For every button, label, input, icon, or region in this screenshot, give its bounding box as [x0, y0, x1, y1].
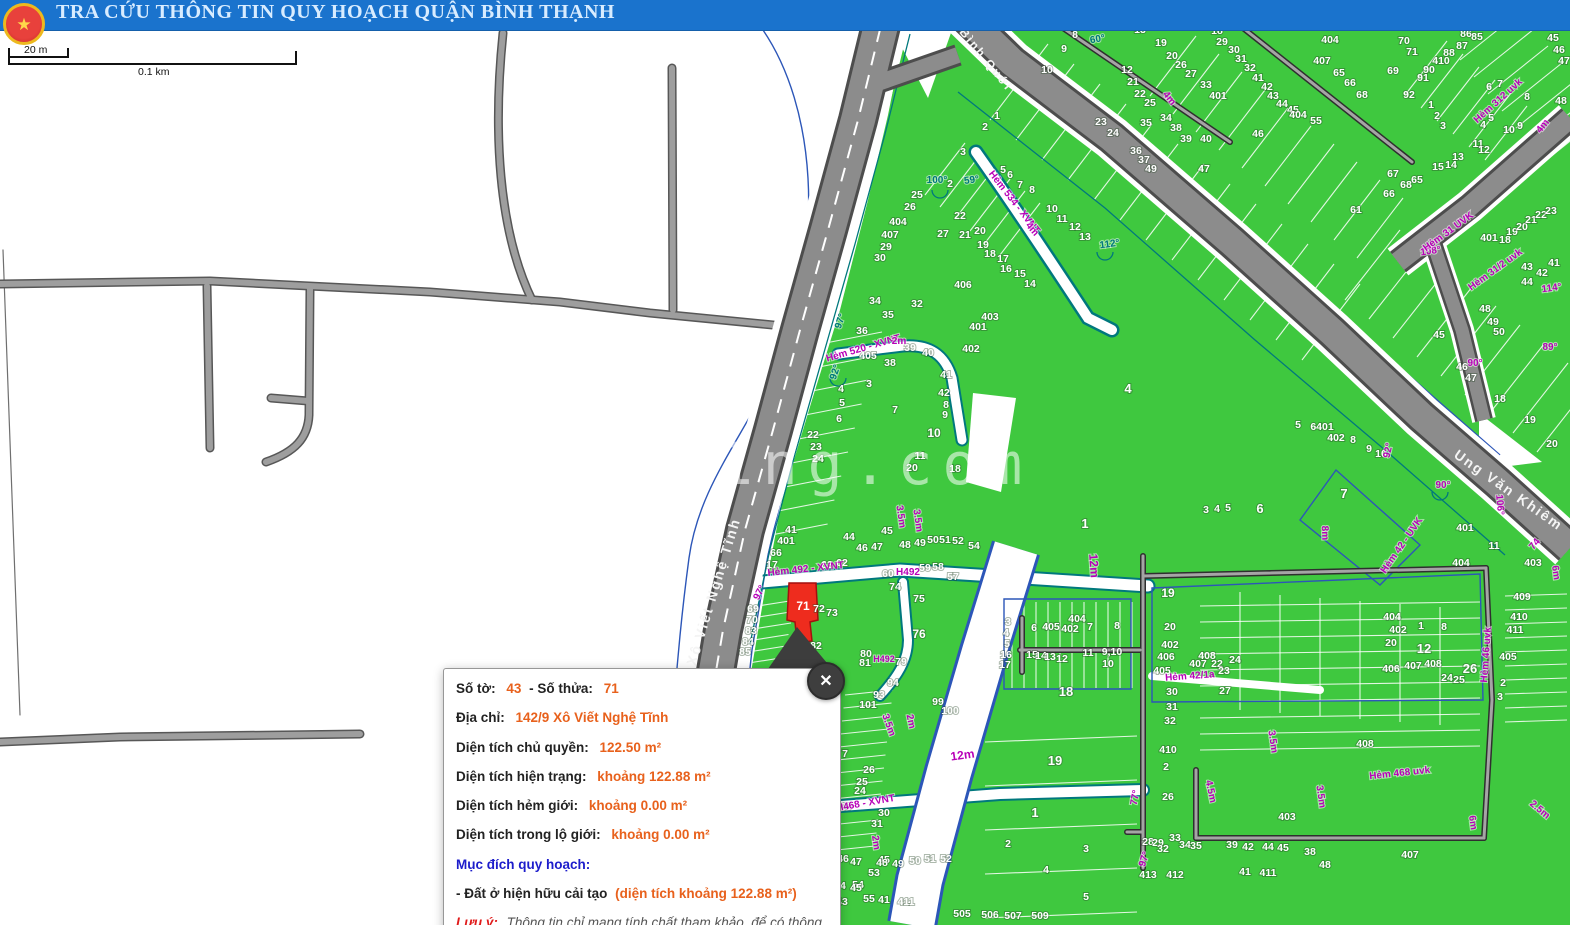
parcel-number-label: 10 [1503, 124, 1515, 136]
parcel-number-label: 407 [881, 229, 899, 241]
close-icon: ✕ [819, 671, 832, 691]
parcel-number-label: 32 [1157, 843, 1169, 855]
parcel-number-label: 3 [1083, 843, 1089, 855]
parcel-number-label: 47 [1198, 163, 1210, 175]
parcel-number-label: 20 [1164, 621, 1176, 633]
parcel-number-label: 36 [856, 325, 868, 337]
parcel-number-label: 71 [796, 599, 810, 613]
popup-label-blue: Mục đích quy hoạch: [456, 857, 590, 872]
parcel-number-label: 404 [1383, 611, 1401, 623]
parcel-number-label: 12 [1417, 641, 1431, 656]
parcel-number-label: 59 [919, 562, 931, 574]
parcel-number-label: 25 [1453, 674, 1465, 686]
parcel-number-label: 410 [1432, 55, 1450, 67]
popup-row: Diện tích hiện trạng: khoảng 122.88 m² [456, 767, 828, 787]
parcel-number-label: 48 [1555, 95, 1567, 107]
parcel-number-label: 412 [1166, 869, 1184, 881]
parcel-number-label: 14 [1024, 278, 1036, 290]
parcel-number-label: 49 [1145, 163, 1157, 175]
popup-row: Số tờ: 43 - Số thửa: 71 [456, 679, 828, 699]
parcel-number-label: 9 [1517, 120, 1523, 132]
parcel-number-label: 32 [911, 298, 923, 310]
parcel-number-label: 54 [968, 540, 980, 552]
popup-row: Diện tích hẻm giới: khoảng 0.00 m² [456, 796, 828, 816]
map-annotation-label: 6m [1549, 565, 1562, 581]
vietnam-emblem-logo: ★ [3, 3, 45, 45]
parcel-number-label: 81 [859, 657, 871, 669]
map-annotation-label: 106° [1493, 494, 1506, 516]
parcel-number-label: 100 [941, 705, 959, 717]
parcel-number-label: 44 [1521, 276, 1533, 288]
parcel-number-label: 44 [843, 531, 855, 543]
map-annotation-label: 2m [892, 336, 907, 347]
parcel-number-label: 42 [938, 387, 950, 399]
parcel-number-label: 17 [999, 659, 1011, 671]
parcel-number-label: 55 [1310, 115, 1322, 127]
parcel-number-label: 2 [982, 121, 988, 133]
parcel-number-label: 403 [1278, 811, 1296, 823]
popup-row: Diện tích chủ quyền: 122.50 m² [456, 738, 828, 758]
parcel-number-label: 49 [914, 537, 926, 549]
parcel-number-label: 40 [922, 347, 934, 359]
parcel-number-label: 39 [1180, 133, 1192, 145]
parcel-number-label: 408 [1424, 658, 1442, 670]
parcel-number-label: 23 [810, 441, 822, 453]
parcel-number-label: 10 [1041, 64, 1053, 76]
popup-value: 43 [506, 681, 521, 696]
parcel-number-label: 21 [1127, 76, 1139, 88]
parcel-number-label: 413 [1139, 869, 1157, 881]
parcel-number-label: 51 [939, 534, 951, 546]
parcel-number-label: 406 [1157, 651, 1175, 663]
parcel-number-label: 406 [1382, 663, 1400, 675]
parcel-number-label: 3 [866, 378, 872, 390]
parcel-number-label: 2 [1500, 677, 1506, 689]
popup-label: Diện tích trong lộ giới: [456, 827, 601, 842]
parcel-number-label: 60 [882, 568, 894, 580]
parcel-number-label: 42 [1536, 267, 1548, 279]
scale-km-label: 0.1 km [138, 66, 170, 78]
popup-value: khoảng 0.00 m² [589, 798, 687, 813]
page-title: TRA CỨU THÔNG TIN QUY HOẠCH QUẬN BÌNH TH… [56, 1, 615, 24]
parcel-number-label: 49 [892, 858, 904, 870]
parcel-number-label: 402 [1161, 639, 1179, 651]
parcel-number-label: 24 [1229, 654, 1241, 666]
parcel-number-label: 25 [911, 189, 923, 201]
parcel-number-label: 66 [1344, 77, 1356, 89]
parcel-number-label: 11 [1488, 540, 1499, 552]
parcel-number-label: 18 [949, 463, 961, 475]
parcel-number-label: 409 [1513, 591, 1531, 603]
parcel-number-label: 24 [1107, 127, 1119, 139]
map-annotation-label: 90° [1435, 480, 1450, 491]
parcel-number-label: 21 [959, 229, 971, 241]
parcel-number-label: 4 [1043, 864, 1049, 876]
parcel-number-label: 20 [906, 462, 918, 474]
parcel-number-label: 404 [1289, 109, 1307, 121]
parcel-number-label: 45 [850, 882, 862, 894]
parcel-number-label: 25 [1144, 97, 1156, 109]
popup-note: Thông tin chỉ mang tính chất tham khảo, … [456, 915, 822, 925]
parcel-number-label: 43 [1521, 261, 1533, 273]
map-annotation-label: 90° [1467, 358, 1482, 369]
parcel-number-label: 22 [954, 210, 966, 222]
parcel-number-label: 7 [842, 748, 848, 760]
parcel-number-label: 506 [981, 909, 999, 921]
parcel-number-label: 47 [871, 541, 883, 553]
parcel-number-label: 8 [1350, 434, 1356, 446]
parcel-number-label: 34 [869, 295, 881, 307]
parcel-number-label: 41 [1239, 866, 1251, 878]
parcel-number-label: 14 [1445, 159, 1457, 171]
parcel-number-label: 10 [1102, 658, 1114, 670]
parcel-number-label: 4 [1124, 381, 1132, 396]
parcel-number-label: 68 [1356, 89, 1368, 101]
popup-label: - Số thửa: [529, 681, 593, 696]
parcel-number-label: 407 [1401, 849, 1419, 861]
parcel-number-label: 32 [1164, 715, 1176, 727]
parcel-number-label: 38 [884, 357, 896, 369]
parcel-number-label: 50 [909, 855, 921, 867]
parcel-number-label: 20 [1385, 637, 1397, 649]
map-annotation-label: H492 [896, 567, 920, 578]
parcel-number-label: 407 [1404, 660, 1422, 672]
parcel-number-label: 72 [813, 603, 825, 615]
parcel-number-label: 31 [871, 818, 883, 830]
parcel-number-label: 44 [1262, 841, 1274, 853]
parcel-number-label: 401 [777, 535, 795, 547]
parcel-number-label: 92 [1403, 89, 1415, 101]
popup-value: (diện tích khoảng 122.88 m²) [615, 886, 797, 901]
map-annotation-label: 12m [1086, 553, 1102, 578]
popup-close-button[interactable]: ✕ [807, 662, 845, 700]
popup-note-label: Lưu ý: [456, 915, 498, 925]
parcel-number-label: 9 [942, 409, 948, 421]
map-annotation-label: 8m [1319, 525, 1331, 540]
planning-map-app: Bình QuớiXô Viết Nghệ TĩnhUng Văn Khiêm7… [0, 0, 1570, 925]
parcel-number-label: 46 [1252, 128, 1264, 140]
parcel-number-label: 12 [1121, 64, 1133, 76]
parcel-number-label: 12 [1478, 144, 1490, 156]
parcel-number-label: 9 [1061, 43, 1067, 55]
popup-row: - Đất ở hiện hữu cải tạo (diện tích khoả… [456, 884, 828, 904]
parcel-number-label: 23 [1545, 205, 1557, 217]
parcel-number-label: 3 [1497, 691, 1503, 703]
parcel-number-label: 45 [1433, 329, 1445, 341]
parcel-number-label: 26 [863, 764, 875, 776]
parcel-number-label: 45 [881, 525, 893, 537]
parcel-number-label: 5 [1295, 419, 1301, 431]
parcel-number-label: 19 [1155, 37, 1167, 49]
popup-label: Diện tích hiện trạng: [456, 769, 587, 784]
parcel-number-label: 1 [1418, 620, 1424, 632]
parcel-number-label: 1 [1031, 805, 1038, 820]
parcel-number-label: 12 [1056, 653, 1068, 665]
parcel-number-label: 45 [1547, 32, 1559, 44]
parcel-number-label: 507 [1004, 910, 1022, 922]
popup-label: Địa chỉ: [456, 710, 505, 725]
parcel-number-label: 13 [1044, 651, 1056, 663]
parcel-number-label: 4 [838, 383, 844, 395]
parcel-number-label: 22 [807, 429, 819, 441]
popup-value: khoảng 122.88 m² [597, 769, 710, 784]
parcel-number-label: 35 [1190, 840, 1202, 852]
parcel-number-label: 1 [994, 110, 1000, 122]
popup-row: Lưu ý: Thông tin chỉ mang tính chất tham… [456, 913, 828, 925]
parcel-number-label: 101 [859, 699, 877, 711]
parcel-number-label: 406 [954, 279, 972, 291]
parcel-number-label: 68 [1400, 179, 1412, 191]
parcel-number-label: 26 [904, 201, 916, 213]
parcel-number-label: 404 [1452, 557, 1470, 569]
parcel-number-label: 6 [1031, 622, 1037, 634]
parcel-number-label: 51 [924, 853, 936, 865]
parcel-number-label: 75 [913, 593, 925, 605]
parcel-number-label: 410 [1159, 744, 1177, 756]
parcel-number-label: 2 [1005, 838, 1011, 850]
parcel-number-label: 58 [932, 561, 944, 573]
parcel-number-label: 76 [912, 627, 926, 641]
parcel-number-label: 48 [1319, 859, 1331, 871]
parcel-number-label: 8 [1114, 620, 1120, 632]
parcel-number-label: 18 [1059, 684, 1073, 699]
popup-value: 122.50 m² [600, 740, 662, 755]
popup-plain: - Đất ở hiện hữu cải tạo [456, 886, 607, 901]
parcel-number-label: 29 [1216, 36, 1228, 48]
parcel-number-label: 401 [969, 321, 987, 333]
parcel-number-label: 48 [899, 539, 911, 551]
parcel-number-label: 11 [1056, 213, 1067, 225]
parcel-number-label: 26 [1162, 791, 1174, 803]
parcel-number-label: 6 [1256, 501, 1263, 516]
parcel-number-label: 94 [887, 677, 899, 689]
parcel-number-label: 46 [856, 542, 868, 554]
parcel-number-label: 8 [1441, 621, 1447, 633]
parcel-number-label: 404 [1321, 34, 1339, 46]
parcel-number-label: 69 [1387, 65, 1399, 77]
parcel-number-label: 3 [1440, 120, 1446, 132]
parcel-number-label: 5 [1083, 891, 1089, 903]
parcel-number-label: 85 [1471, 31, 1483, 43]
map-annotation-label: 100° [927, 175, 948, 186]
parcel-number-label: 91 [1417, 72, 1429, 84]
header-bar: TRA CỨU THÔNG TIN QUY HOẠCH QUẬN BÌNH TH… [0, 0, 1570, 31]
parcel-number-label: 11 [1082, 647, 1093, 659]
parcel-number-label: 35 [1140, 117, 1152, 129]
parcel-number-label: 5 [1000, 164, 1006, 176]
parcel-number-label: 40 [1200, 133, 1212, 145]
parcel-number-label: 27 [937, 228, 949, 240]
parcel-number-label: 47 [1465, 372, 1477, 384]
parcel-number-label: 5 [1225, 502, 1231, 514]
parcel-number-label: 7 [1497, 78, 1503, 90]
map-annotation-label: 6m [1466, 815, 1479, 831]
popup-value: 71 [604, 681, 619, 696]
map-annotation-label: 59° [963, 174, 980, 187]
popup-row: Mục đích quy hoạch: [456, 855, 828, 875]
parcel-number-label: 2 [947, 178, 953, 190]
parcel-number-label: 35 [882, 309, 894, 321]
parcel-number-label: 41 [940, 369, 952, 381]
parcel-number-label: 402 [962, 343, 980, 355]
parcel-number-label: 24 [1441, 672, 1453, 684]
parcel-number-label: 20 [974, 225, 986, 237]
parcel-number-label: 18 [1494, 393, 1506, 405]
parcel-number-label: 38 [1304, 846, 1316, 858]
parcel-number-label: 27 [1185, 68, 1197, 80]
parcel-number-label: 99 [932, 696, 944, 708]
parcel-number-label: 65 [1411, 174, 1423, 186]
parcel-number-label: 47 [850, 856, 862, 868]
parcel-number-label: 402 [1327, 432, 1345, 444]
parcel-number-label: 403 [1524, 557, 1542, 569]
parcel-number-label: 405 [1499, 651, 1517, 663]
parcel-number-label: 6 [1486, 81, 1492, 93]
parcel-number-label: 73 [826, 607, 838, 619]
parcel-number-label: 407 [1189, 658, 1207, 670]
parcel-number-label: 52 [940, 853, 952, 865]
parcel-number-label: 30 [874, 252, 886, 264]
parcel-number-label: 7 [1340, 486, 1347, 501]
parcel-number-label: 1 [1081, 516, 1088, 531]
parcel-number-label: 509 [1031, 910, 1049, 922]
parcel-number-label: 18 [984, 248, 996, 260]
popup-label: Diện tích chủ quyền: [456, 740, 589, 755]
parcel-number-label: 8 [1524, 91, 1530, 103]
scale-bar: 20 m 0.1 km [0, 38, 310, 78]
parcel-number-label: 23 [1218, 665, 1230, 677]
parcel-number-label: 10 [927, 426, 941, 440]
parcel-number-label: 48 [1479, 303, 1491, 315]
star-icon: ★ [16, 16, 31, 33]
parcel-number-label: 13 [1079, 231, 1091, 243]
parcel-number-label: 24 [812, 453, 824, 465]
parcel-number-label: 57 [947, 571, 959, 583]
parcel-number-label: 8 [1029, 184, 1035, 196]
parcel-number-label: 16 [1000, 263, 1012, 275]
parcel-number-label: 404 [889, 216, 907, 228]
parcel-number-label: 3 [1203, 504, 1209, 516]
parcel-number-label: 66 [1383, 188, 1395, 200]
parcel-number-label: 2 [1163, 761, 1169, 773]
popup-label: Số tờ: [456, 681, 496, 696]
map-annotation-label: H492 [873, 654, 895, 664]
parcel-number-label: 61 [1350, 204, 1362, 216]
parcel-number-label: 410 [1510, 611, 1528, 623]
parcel-number-label: 71 [1406, 46, 1418, 58]
parcel-number-label: 4 [1214, 503, 1220, 515]
parcel-number-label: 27 [1219, 685, 1231, 697]
scale-meters-label: 20 m [24, 44, 47, 56]
parcel-number-label: 411 [1507, 624, 1524, 636]
parcel-number-label: 39 [1226, 839, 1238, 851]
parcel-number-label: 11 [914, 450, 925, 462]
parcel-number-label: 505 [953, 908, 971, 920]
parcel-number-label: 401 [1456, 522, 1474, 534]
parcel-number-label: 55 [863, 893, 875, 905]
parcel-number-label: 30 [1166, 686, 1178, 698]
parcel-number-label: 7 [892, 404, 898, 416]
parcel-number-label: 20 [1546, 438, 1558, 450]
parcel-number-label: 85 [739, 646, 751, 658]
parcel-number-label: 45 [1277, 842, 1289, 854]
parcel-number-label: 6 [1007, 169, 1013, 181]
parcel-number-label: 50 [1493, 326, 1505, 338]
popup-row: Diện tích trong lộ giới: khoảng 0.00 m² [456, 825, 828, 845]
parcel-info-popup: Số tờ: 43 - Số thửa: 71 Địa chỉ: 142/9 X… [443, 668, 841, 925]
popup-row: Địa chỉ: 142/9 Xô Viết Nghệ Tĩnh [456, 708, 828, 728]
parcel-number-label: 87 [1456, 40, 1468, 52]
parcel-number-label: 3 [960, 146, 966, 158]
popup-value: 142/9 Xô Viết Nghệ Tĩnh [516, 710, 669, 725]
parcel-number-label: 7 [1017, 179, 1023, 191]
parcel-number-label: 9,10 [1102, 646, 1123, 658]
parcel-number-label: 6 [836, 413, 842, 425]
parcel-number-label: 15 [1432, 161, 1444, 173]
parcel-number-label: 66 [770, 547, 782, 559]
map-annotation-label: 2m [869, 835, 882, 851]
parcel-number-label: 402 [1389, 624, 1407, 636]
parcel-number-label: 5 [839, 397, 845, 409]
popup-value: khoảng 0.00 m² [611, 827, 709, 842]
parcel-number-label: 50 [927, 534, 939, 546]
parcel-number-label: 411 [1260, 867, 1277, 879]
parcel-number-label: 26 [1463, 661, 1477, 676]
parcel-number-label: 405 [1042, 621, 1060, 633]
parcel-number-label: 48 [876, 857, 888, 869]
parcel-number-label: 41 [878, 894, 890, 906]
parcel-number-label: 19 [1524, 414, 1536, 426]
map-annotation-label: 89° [1542, 342, 1557, 353]
parcel-number-label: 42 [1242, 841, 1254, 853]
parcel-number-label: 408 [1356, 738, 1374, 750]
parcel-number-label: 52 [952, 535, 964, 547]
parcel-number-label: 411 [898, 896, 915, 908]
parcel-number-label: 67 [1387, 168, 1399, 180]
parcel-number-label: 401 [1480, 232, 1498, 244]
parcel-number-label: 47 [1558, 55, 1570, 67]
parcel-number-label: 9 [1366, 443, 1372, 455]
parcel-number-label: 41 [1548, 257, 1560, 269]
parcel-number-label: 407 [1313, 55, 1331, 67]
parcel-number-label: 19 [1048, 753, 1062, 768]
parcel-number-label: 79 [895, 656, 907, 668]
parcel-number-label: 401 [1209, 90, 1227, 102]
parcel-number-label: 19 [1161, 586, 1175, 600]
parcel-number-label: 404 [1068, 613, 1086, 625]
parcel-number-label: 31 [1166, 701, 1178, 713]
parcel-number-label: 24 [854, 785, 866, 797]
parcel-number-label: 23 [1095, 116, 1107, 128]
parcel-number-label: 7 [1087, 621, 1093, 633]
parcel-number-label: 74 [889, 581, 901, 593]
popup-label: Diện tích hẻm giới: [456, 798, 578, 813]
